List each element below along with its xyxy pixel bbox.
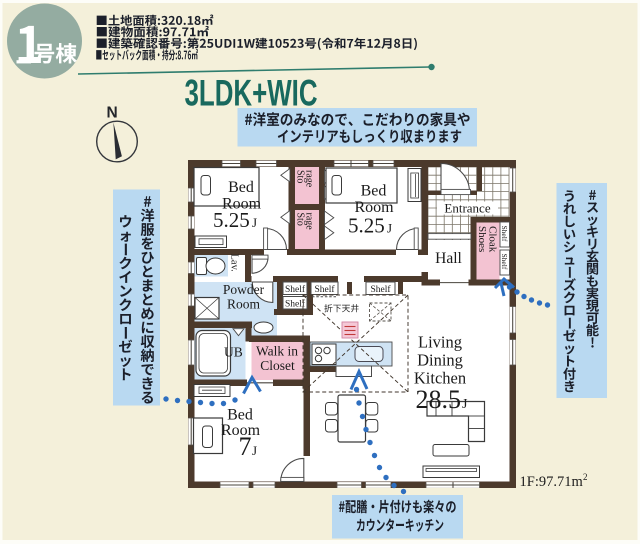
svg-text:N: N bbox=[107, 105, 118, 122]
svg-text:J: J bbox=[462, 397, 468, 412]
svg-text:Walk in: Walk in bbox=[256, 344, 298, 359]
svg-text:Entrance: Entrance bbox=[444, 201, 490, 216]
svg-text:Bed: Bed bbox=[228, 179, 254, 196]
svg-text:Bed: Bed bbox=[361, 183, 387, 200]
svg-text:Shelf: Shelf bbox=[285, 284, 306, 295]
svg-text:Powder: Powder bbox=[223, 282, 265, 297]
svg-text:3LDK+WIC: 3LDK+WIC bbox=[185, 72, 318, 114]
svg-text:Closet: Closet bbox=[260, 358, 295, 373]
svg-text:5.25: 5.25 bbox=[348, 214, 385, 238]
svg-text:5.25: 5.25 bbox=[213, 208, 250, 232]
svg-text:J: J bbox=[252, 443, 257, 458]
svg-text:7: 7 bbox=[239, 432, 252, 461]
svg-text:Shoes: Shoes bbox=[476, 226, 488, 252]
svg-text:J: J bbox=[252, 215, 257, 230]
svg-text:Shelf: Shelf bbox=[500, 254, 509, 270]
svg-text:1F:97.71m: 1F:97.71m bbox=[520, 474, 584, 490]
svg-text:J: J bbox=[387, 221, 392, 236]
svg-text:2: 2 bbox=[583, 472, 588, 482]
svg-text:Room: Room bbox=[227, 297, 261, 312]
svg-text:Hall: Hall bbox=[435, 250, 462, 267]
svg-text:Cloak: Cloak bbox=[487, 226, 499, 253]
svg-text:Dining: Dining bbox=[417, 351, 463, 370]
svg-text:Shelf: Shelf bbox=[500, 226, 509, 242]
svg-text:Lav.: Lav. bbox=[229, 254, 240, 272]
svg-text:Shelf: Shelf bbox=[314, 284, 335, 295]
svg-text:Living: Living bbox=[418, 333, 462, 352]
svg-text:Shelf: Shelf bbox=[370, 284, 391, 295]
svg-text:Bed: Bed bbox=[227, 407, 253, 424]
svg-text:rage: rage bbox=[304, 213, 315, 231]
svg-text:rage: rage bbox=[304, 170, 315, 188]
svg-text:UB: UB bbox=[224, 345, 243, 360]
svg-text:28.5: 28.5 bbox=[416, 385, 462, 414]
